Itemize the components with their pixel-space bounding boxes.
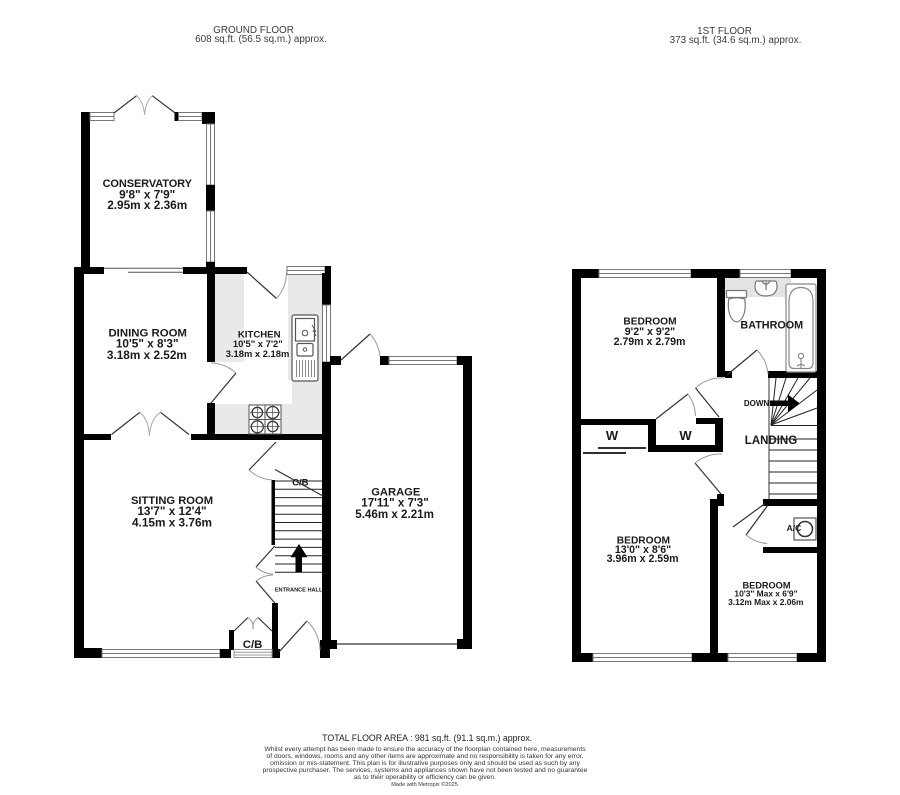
- svg-text:373 sq.ft. (34.6 sq.m.) approx: 373 sq.ft. (34.6 sq.m.) approx.: [670, 35, 802, 46]
- svg-text:2.95m x 2.36m: 2.95m x 2.36m: [107, 198, 187, 212]
- svg-text:W: W: [679, 428, 692, 443]
- svg-text:of doors, windows, rooms and a: of doors, windows, rooms and any other i…: [266, 753, 583, 760]
- svg-text:as to their operability or eff: as to their operability or efficiency ca…: [354, 774, 496, 781]
- svg-text:ENTRANCE HALL: ENTRANCE HALL: [275, 588, 323, 594]
- svg-text:608 sq.ft. (56.5 sq.m.) approx: 608 sq.ft. (56.5 sq.m.) approx.: [195, 34, 327, 45]
- svg-text:TOTAL FLOOR AREA : 981 sq.ft.: TOTAL FLOOR AREA : 981 sq.ft. (91.1 sq.m…: [322, 733, 532, 743]
- svg-text:BATHROOM: BATHROOM: [740, 320, 803, 332]
- svg-text:Made with Metropix ©2025: Made with Metropix ©2025: [391, 781, 458, 788]
- svg-text:3.18m x 2.18m: 3.18m x 2.18m: [226, 348, 290, 359]
- svg-text:3.96m x 2.59m: 3.96m x 2.59m: [607, 553, 679, 565]
- svg-text:2.79m x 2.79m: 2.79m x 2.79m: [614, 336, 686, 348]
- svg-text:C/B: C/B: [243, 639, 263, 651]
- svg-text:3.12m Max x 2.06m: 3.12m Max x 2.06m: [728, 597, 803, 607]
- svg-text:omission or mis-statement. Thi: omission or mis-statement. This plan is …: [270, 760, 580, 767]
- svg-text:Whilst every attempt has been: Whilst every attempt has been made to en…: [264, 746, 586, 753]
- svg-text:prospective purchaser. The ser: prospective purchaser. The services, sys…: [263, 767, 588, 774]
- svg-text:DOWN: DOWN: [744, 399, 770, 408]
- svg-text:3.18m x 2.52m: 3.18m x 2.52m: [107, 348, 187, 362]
- svg-text:C/B: C/B: [292, 477, 309, 488]
- svg-text:W: W: [606, 428, 619, 443]
- svg-text:5.46m x 2.21m: 5.46m x 2.21m: [355, 508, 434, 521]
- svg-text:LANDING: LANDING: [745, 435, 797, 447]
- svg-text:A/C: A/C: [787, 523, 802, 533]
- svg-text:4.15m x 3.76m: 4.15m x 3.76m: [132, 515, 212, 529]
